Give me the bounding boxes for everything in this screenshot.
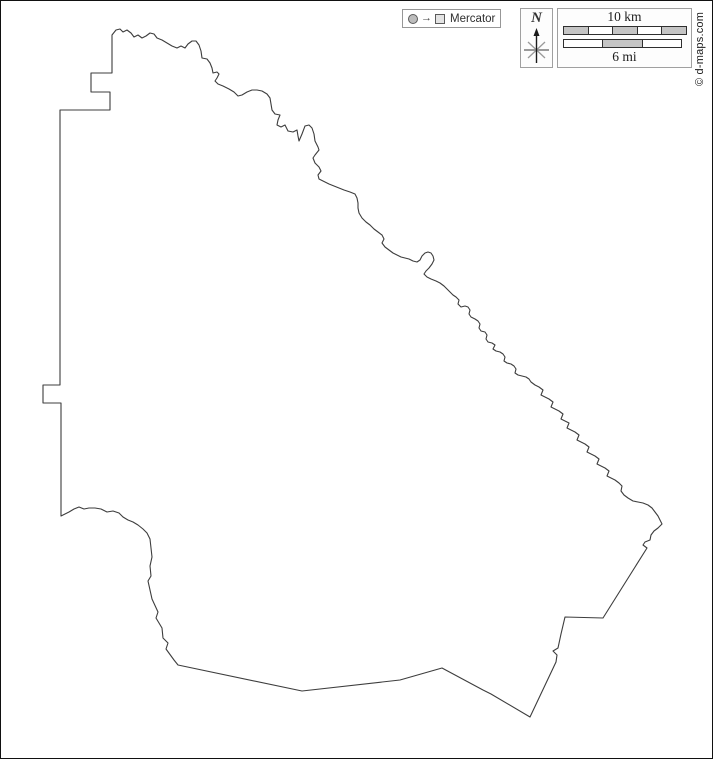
scale-bar-mi <box>563 39 682 48</box>
sphere-icon <box>408 14 418 24</box>
scale-mi-label: 6 mi <box>558 50 691 64</box>
north-label: N <box>531 11 542 26</box>
scale-bar-segment <box>564 40 602 47</box>
projection-arrow-icon: → <box>421 13 432 24</box>
scale-km-label: 10 km <box>558 10 691 24</box>
scale-box: 10 km 6 mi <box>557 8 692 68</box>
scale-bar-segment <box>588 27 613 34</box>
scale-bar-segment <box>564 27 588 34</box>
outline-map <box>0 0 713 759</box>
scale-bar-segment <box>661 27 686 34</box>
scale-bar-segment <box>602 40 641 47</box>
compass-box: N <box>520 8 553 68</box>
projection-label: Mercator <box>448 13 495 25</box>
scale-bar-segment <box>637 27 662 34</box>
scale-bar-segment <box>612 27 637 34</box>
plane-square-icon <box>435 14 445 24</box>
map-outline-path <box>43 29 662 717</box>
scale-bar-km <box>563 26 687 35</box>
copyright-text: © d-maps.com <box>694 12 706 86</box>
scale-bar-segment <box>642 40 681 47</box>
projection-legend: → Mercator <box>402 9 501 28</box>
compass-rose-icon <box>522 27 551 65</box>
